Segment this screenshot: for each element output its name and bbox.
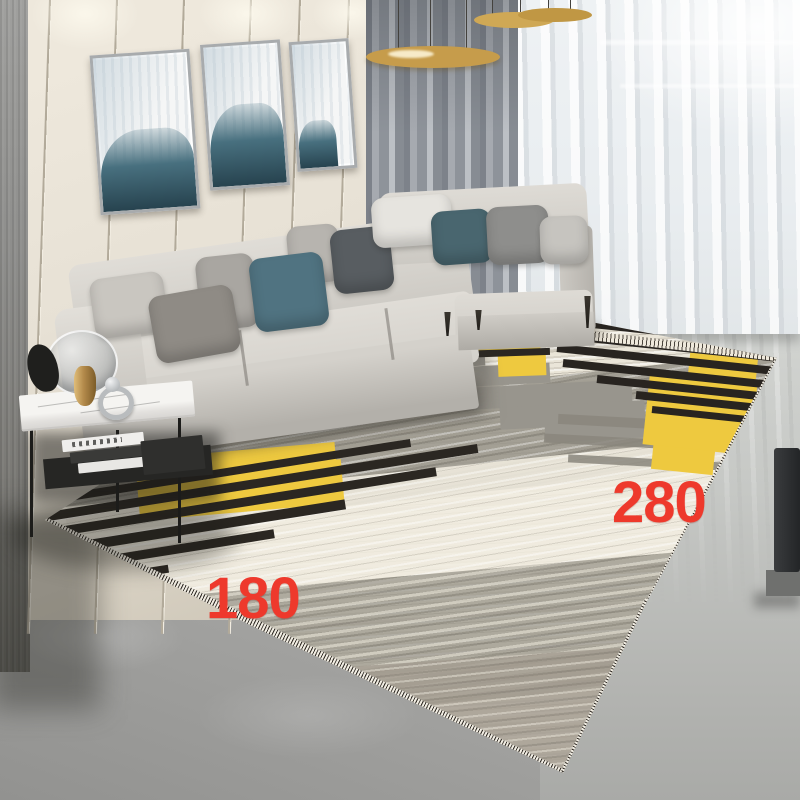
window-light-band bbox=[600, 40, 800, 45]
dark-stool bbox=[774, 448, 800, 572]
painting-left bbox=[90, 49, 201, 216]
chandelier-wire bbox=[430, 0, 431, 50]
ring-ornament-ball bbox=[105, 377, 120, 392]
decor-box bbox=[140, 435, 205, 475]
chandelier-ring-small bbox=[518, 8, 592, 22]
pillow-teal bbox=[430, 208, 494, 266]
rug-length-label: 280 bbox=[612, 474, 706, 532]
living-room-photo: 280 180 bbox=[0, 0, 800, 800]
gold-vase bbox=[74, 366, 96, 406]
chandelier-highlight bbox=[388, 50, 434, 58]
painting-right bbox=[289, 38, 358, 172]
painting-art bbox=[297, 119, 338, 169]
pillow bbox=[147, 283, 243, 365]
table-leg bbox=[30, 425, 33, 537]
pillow-teal bbox=[248, 251, 330, 333]
painting-middle bbox=[200, 39, 290, 190]
wall-light-glow bbox=[198, 0, 298, 46]
wall-light-glow bbox=[30, 0, 140, 50]
chandelier-wire bbox=[466, 0, 467, 50]
window-light-band bbox=[620, 84, 800, 88]
book-spine-marks bbox=[72, 437, 122, 447]
chandelier-wire bbox=[398, 0, 399, 52]
stool-base bbox=[766, 570, 800, 596]
rug-width-label: 180 bbox=[206, 570, 300, 628]
table-shadow bbox=[12, 498, 237, 570]
pillow bbox=[539, 215, 589, 265]
chandelier-ring-large bbox=[366, 46, 500, 68]
chandelier-wire bbox=[520, 0, 521, 12]
